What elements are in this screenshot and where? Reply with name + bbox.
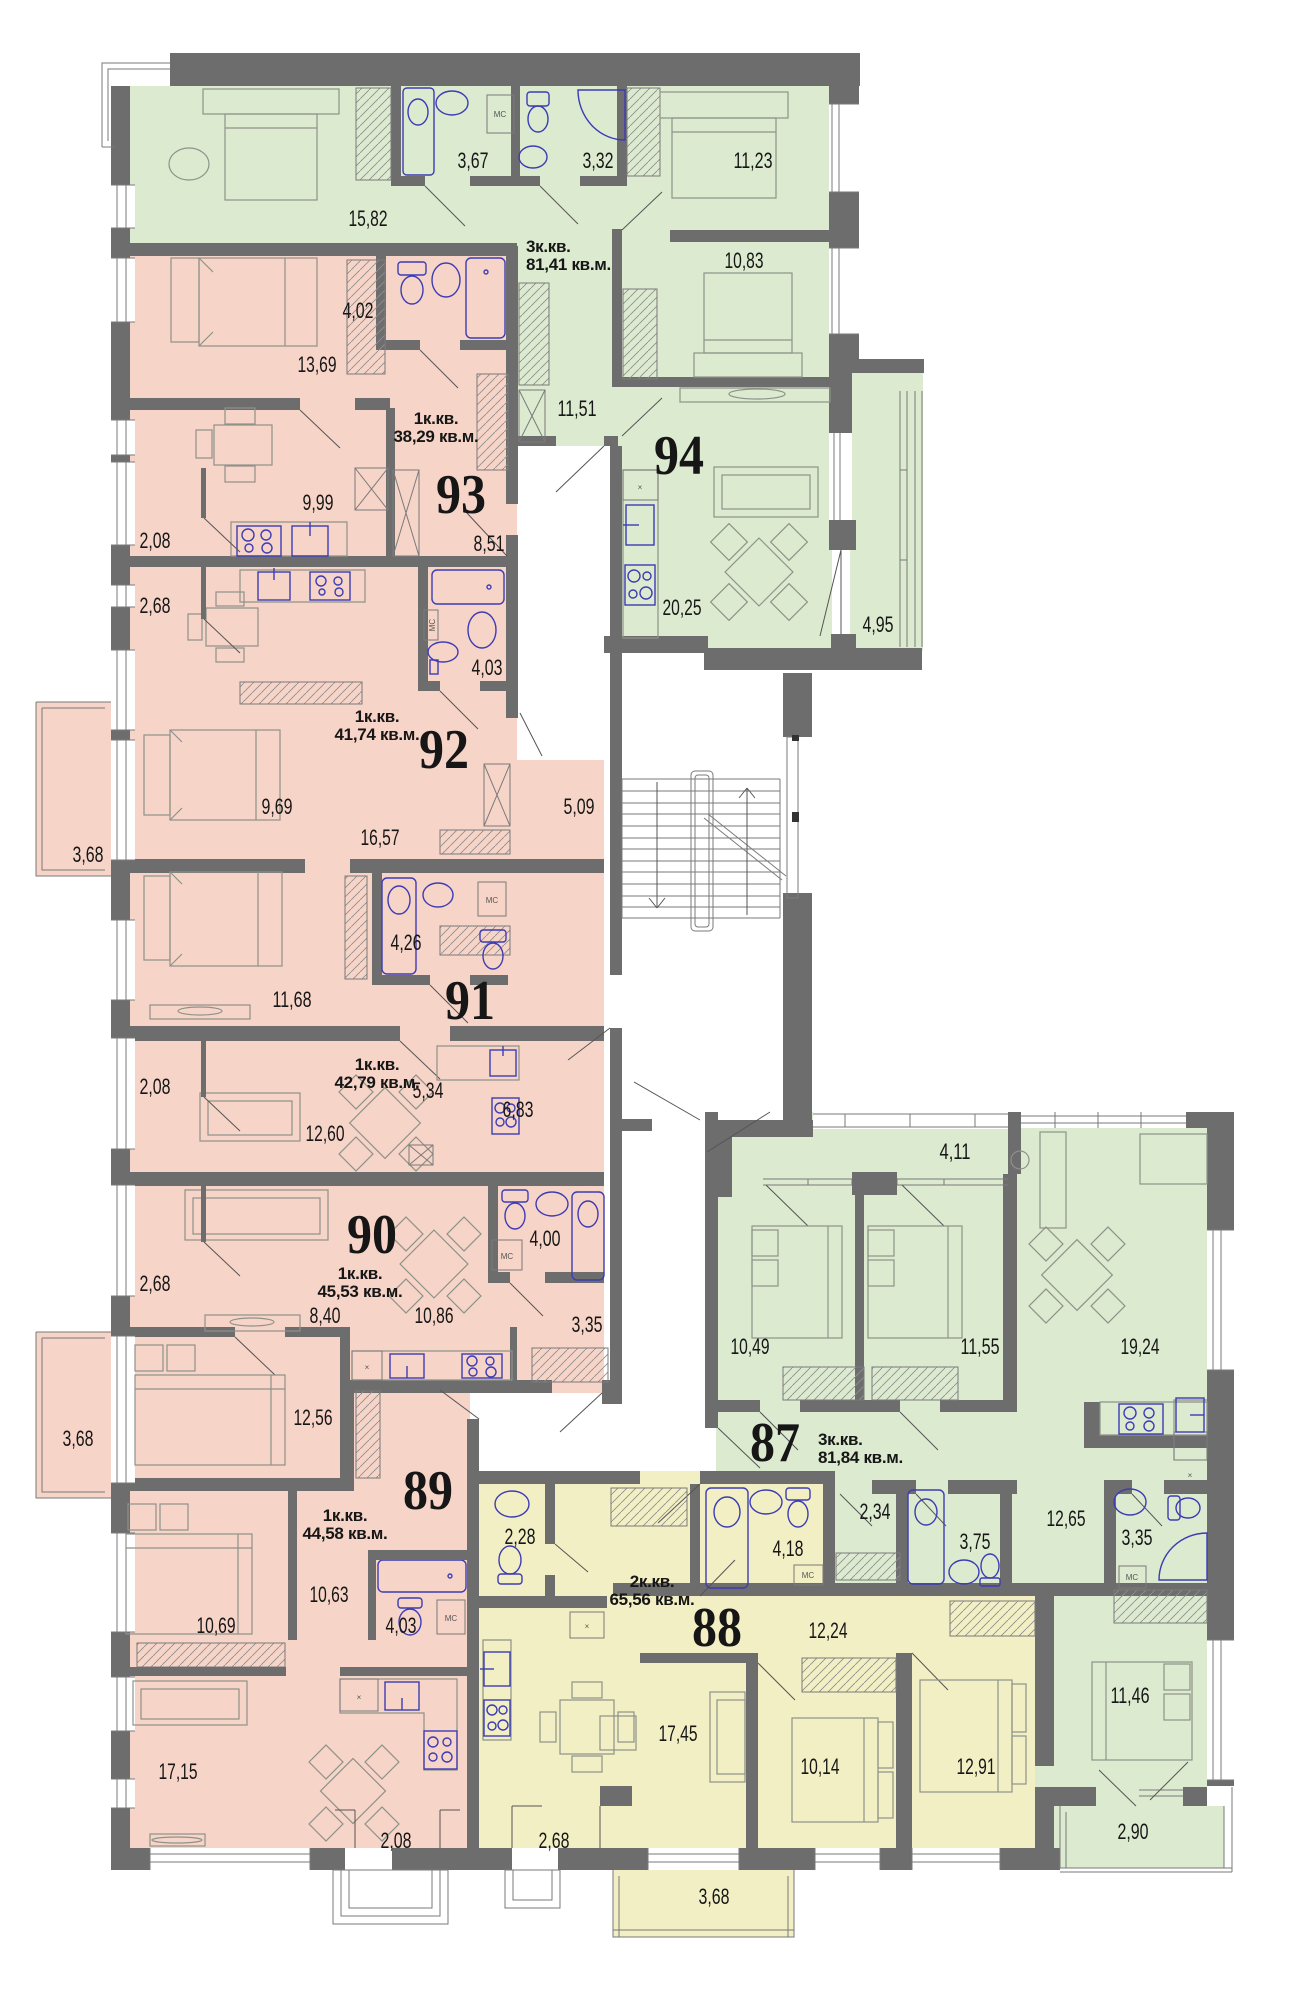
svg-text:МС: МС (445, 1614, 458, 1623)
svg-text:3к.кв.: 3к.кв. (818, 1430, 863, 1449)
svg-text:3,35: 3,35 (1122, 1525, 1153, 1550)
svg-text:92: 92 (419, 719, 469, 781)
svg-text:65,56 кв.м.: 65,56 кв.м. (610, 1590, 695, 1609)
svg-text:12,60: 12,60 (306, 1121, 345, 1146)
svg-text:9,69: 9,69 (262, 794, 293, 819)
svg-text:10,14: 10,14 (801, 1754, 840, 1779)
svg-text:3,67: 3,67 (458, 148, 489, 173)
svg-text:1к.кв.: 1к.кв. (355, 1055, 400, 1074)
svg-text:4,95: 4,95 (863, 612, 894, 637)
svg-text:12,65: 12,65 (1047, 1506, 1086, 1531)
svg-text:12,56: 12,56 (294, 1405, 333, 1430)
svg-text:2,08: 2,08 (140, 528, 171, 553)
svg-text:×: × (585, 1622, 590, 1631)
svg-text:45,53 кв.м.: 45,53 кв.м. (318, 1282, 403, 1301)
svg-text:4,02: 4,02 (343, 298, 374, 323)
svg-text:41,74 кв.м.: 41,74 кв.м. (335, 725, 420, 744)
svg-text:2,34: 2,34 (860, 1499, 891, 1524)
svg-text:2,28: 2,28 (505, 1524, 536, 1549)
svg-text:1к.кв.: 1к.кв. (338, 1264, 383, 1283)
svg-text:3,68: 3,68 (73, 842, 104, 867)
svg-text:2,90: 2,90 (1118, 1819, 1149, 1844)
svg-text:3,32: 3,32 (583, 148, 614, 173)
svg-text:МС: МС (486, 896, 499, 905)
svg-text:МС: МС (802, 1571, 815, 1580)
svg-text:15,82: 15,82 (349, 206, 388, 231)
svg-text:38,29 кв.м.: 38,29 кв.м. (394, 427, 479, 446)
svg-text:42,79 кв.м.: 42,79 кв.м. (335, 1073, 420, 1092)
svg-text:10,83: 10,83 (725, 248, 764, 273)
svg-text:11,23: 11,23 (734, 148, 773, 173)
svg-text:3,35: 3,35 (572, 1312, 603, 1337)
svg-text:2к.кв.: 2к.кв. (630, 1572, 675, 1591)
svg-text:11,46: 11,46 (1111, 1683, 1150, 1708)
svg-text:10,69: 10,69 (197, 1613, 236, 1638)
svg-text:17,45: 17,45 (659, 1721, 698, 1746)
svg-text:12,24: 12,24 (809, 1618, 848, 1643)
svg-text:11,55: 11,55 (961, 1334, 1000, 1359)
svg-text:×: × (1188, 1471, 1193, 1480)
svg-text:94: 94 (654, 425, 704, 487)
svg-text:МС: МС (494, 110, 507, 119)
svg-text:2,08: 2,08 (140, 1074, 171, 1099)
svg-text:16,57: 16,57 (361, 825, 400, 850)
svg-text:×: × (357, 1693, 362, 1702)
svg-text:3,68: 3,68 (699, 1884, 730, 1909)
svg-text:2,68: 2,68 (140, 1271, 171, 1296)
svg-text:1к.кв.: 1к.кв. (414, 409, 459, 428)
svg-text:10,49: 10,49 (731, 1334, 770, 1359)
svg-text:×: × (638, 483, 643, 492)
svg-text:91: 91 (445, 970, 495, 1032)
svg-text:20,25: 20,25 (663, 595, 702, 620)
svg-text:44,58 кв.м.: 44,58 кв.м. (303, 1524, 388, 1543)
svg-text:88: 88 (692, 1597, 742, 1659)
svg-text:81,84 кв.м.: 81,84 кв.м. (818, 1448, 903, 1467)
svg-text:1к.кв.: 1к.кв. (355, 707, 400, 726)
svg-text:8,51: 8,51 (474, 531, 505, 556)
svg-text:МС: МС (1126, 1573, 1139, 1582)
svg-text:10,63: 10,63 (310, 1582, 349, 1607)
svg-text:6,83: 6,83 (503, 1097, 534, 1122)
svg-text:87: 87 (750, 1412, 800, 1474)
svg-text:4,18: 4,18 (773, 1536, 804, 1561)
svg-text:3,68: 3,68 (63, 1426, 94, 1451)
svg-text:2,08: 2,08 (381, 1828, 412, 1853)
svg-text:89: 89 (403, 1460, 453, 1522)
svg-text:17,15: 17,15 (159, 1759, 198, 1784)
svg-text:4,03: 4,03 (472, 655, 503, 680)
svg-text:19,24: 19,24 (1121, 1334, 1160, 1359)
svg-text:4,11: 4,11 (940, 1139, 971, 1164)
svg-text:8,40: 8,40 (310, 1303, 341, 1328)
svg-text:90: 90 (347, 1204, 397, 1266)
svg-text:4,26: 4,26 (391, 930, 422, 955)
svg-text:×: × (365, 1363, 370, 1372)
svg-text:11,68: 11,68 (273, 987, 312, 1012)
svg-text:1к.кв.: 1к.кв. (323, 1506, 368, 1525)
svg-text:12,91: 12,91 (957, 1754, 996, 1779)
svg-text:81,41 кв.м.: 81,41 кв.м. (526, 255, 611, 274)
svg-text:11,51: 11,51 (558, 396, 597, 421)
svg-text:МС: МС (501, 1252, 514, 1261)
svg-text:4,00: 4,00 (530, 1226, 561, 1251)
svg-text:13,69: 13,69 (298, 352, 337, 377)
svg-text:3к.кв.: 3к.кв. (526, 237, 571, 256)
svg-text:2,68: 2,68 (539, 1828, 570, 1853)
svg-text:МС: МС (428, 619, 437, 632)
svg-text:93: 93 (436, 464, 486, 526)
svg-text:3,75: 3,75 (960, 1529, 991, 1554)
svg-text:9,99: 9,99 (303, 490, 334, 515)
svg-text:2,68: 2,68 (140, 593, 171, 618)
svg-text:4,03: 4,03 (386, 1613, 417, 1638)
svg-text:5,09: 5,09 (564, 794, 595, 819)
svg-text:10,86: 10,86 (415, 1303, 454, 1328)
